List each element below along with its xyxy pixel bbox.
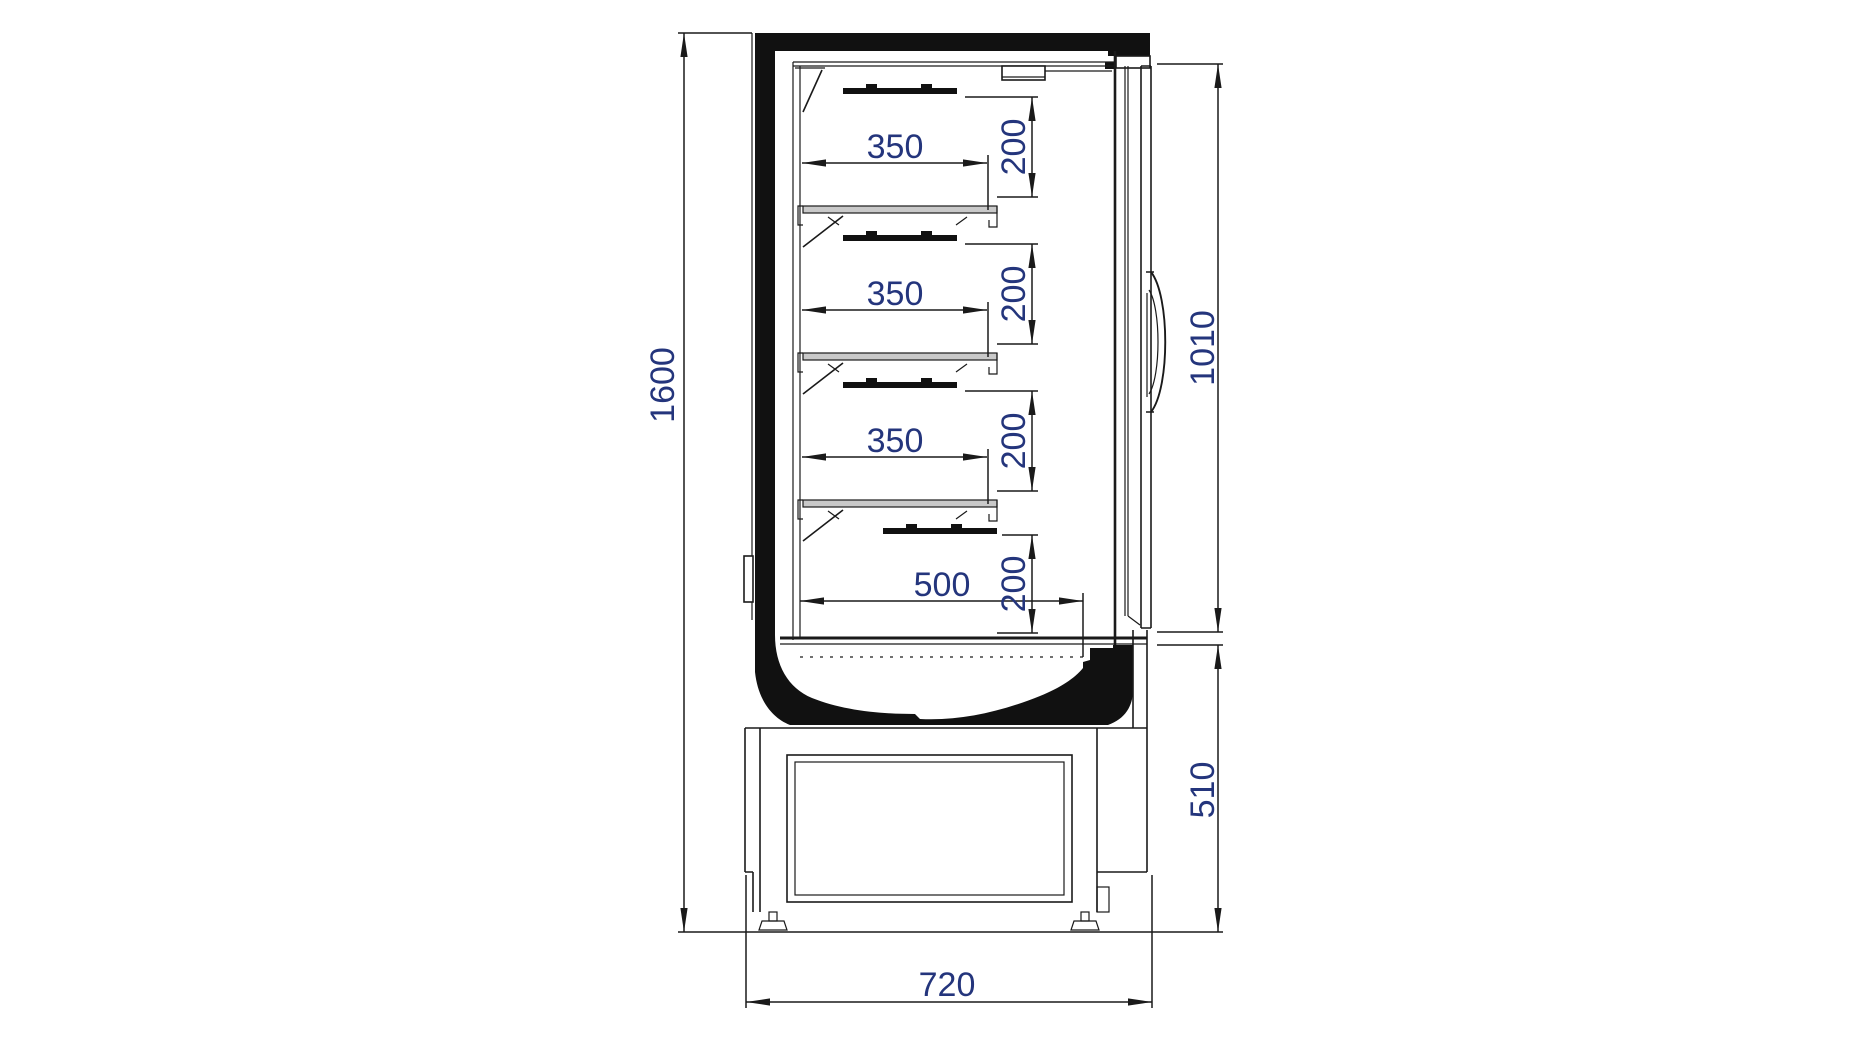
shelf-light-bar-1 <box>843 88 957 94</box>
light-bar-clip <box>866 231 877 235</box>
light-bar-clip <box>921 378 932 382</box>
light-bar-clip <box>866 378 877 382</box>
shelf-light-bar-3 <box>843 382 957 388</box>
dim-bottom-shelf-depth: 500 <box>800 566 1083 657</box>
front-lower-panel <box>1133 630 1147 728</box>
dim-shelf-depth-1: 350 <box>802 128 988 210</box>
shelf-2 <box>803 353 997 360</box>
foot-stem <box>1081 912 1089 921</box>
base-right-leg <box>1097 728 1147 912</box>
top-panel <box>755 33 1150 51</box>
base-cabinet <box>745 728 1147 930</box>
light-bar-clip <box>951 524 962 528</box>
dim-label-opening-height: 1010 <box>1184 310 1222 386</box>
light-bar-clip <box>921 231 932 235</box>
dim-shelf-depth-3: 350 <box>802 422 988 504</box>
technical-drawing-canvas: 1600 350 350 350 500 200 200 200 <box>0 0 1875 1050</box>
leveling-foot-left <box>759 912 787 930</box>
shelf-3 <box>803 500 997 507</box>
dim-clearance-4: 200 <box>995 535 1038 633</box>
foot-stem <box>769 912 777 921</box>
foot-pad <box>1071 921 1099 930</box>
dim-label-shelf-depth-1: 350 <box>867 128 924 166</box>
shelf-1 <box>803 206 997 213</box>
base-right-bracket <box>1097 887 1109 912</box>
dim-label-clearance-1: 200 <box>995 119 1033 176</box>
lamp-housing <box>1002 66 1045 80</box>
glass-door <box>1115 51 1165 728</box>
canopy-strut <box>803 363 843 394</box>
dim-label-bottom-shelf-depth: 500 <box>914 566 971 604</box>
canopy-strut <box>803 510 843 541</box>
ceiling-liner <box>793 62 1115 66</box>
shelf-light-bar-2 <box>843 235 957 241</box>
rear-duct-liner <box>793 62 800 640</box>
dim-label-overall-depth: 720 <box>919 966 976 1004</box>
light-bar-clip <box>921 84 932 88</box>
foot-pad <box>759 921 787 930</box>
back-wall-and-basin <box>755 33 1133 725</box>
canopy-strut <box>803 216 843 247</box>
dim-label-clearance-3: 200 <box>995 413 1033 470</box>
shelf-light-bar-4 <box>883 528 997 534</box>
dim-label-clearance-4: 200 <box>995 556 1033 613</box>
dim-clearance-2: 200 <box>965 244 1038 344</box>
cabinet-section-drawing: 1600 350 350 350 500 200 200 200 <box>0 0 1875 1050</box>
dim-opening-height: 1010 <box>1157 64 1223 632</box>
dim-label-shelf-depth-2: 350 <box>867 275 924 313</box>
dim-label-overall-height: 1600 <box>644 347 682 423</box>
dim-label-shelf-depth-3: 350 <box>867 422 924 460</box>
light-bar-clip <box>906 524 917 528</box>
canopy-strut <box>803 70 822 112</box>
door-outer-frame <box>1141 66 1151 628</box>
dim-label-base-height: 510 <box>1184 762 1222 819</box>
dim-base-height: 510 <box>1157 645 1223 932</box>
base-left-leg <box>745 728 760 912</box>
door-inner-pane <box>1125 66 1140 625</box>
side-junction-tab <box>744 556 753 602</box>
cabinet-body <box>744 33 1150 725</box>
dim-clearance-1: 200 <box>965 97 1038 197</box>
dim-label-clearance-2: 200 <box>995 266 1033 323</box>
door-handle <box>1146 272 1165 412</box>
light-bar-clip <box>866 84 877 88</box>
leveling-foot-right <box>1071 912 1099 930</box>
base-front-panel <box>787 755 1072 902</box>
dim-shelf-depth-2: 350 <box>802 275 988 357</box>
dim-clearance-3: 200 <box>965 391 1038 491</box>
